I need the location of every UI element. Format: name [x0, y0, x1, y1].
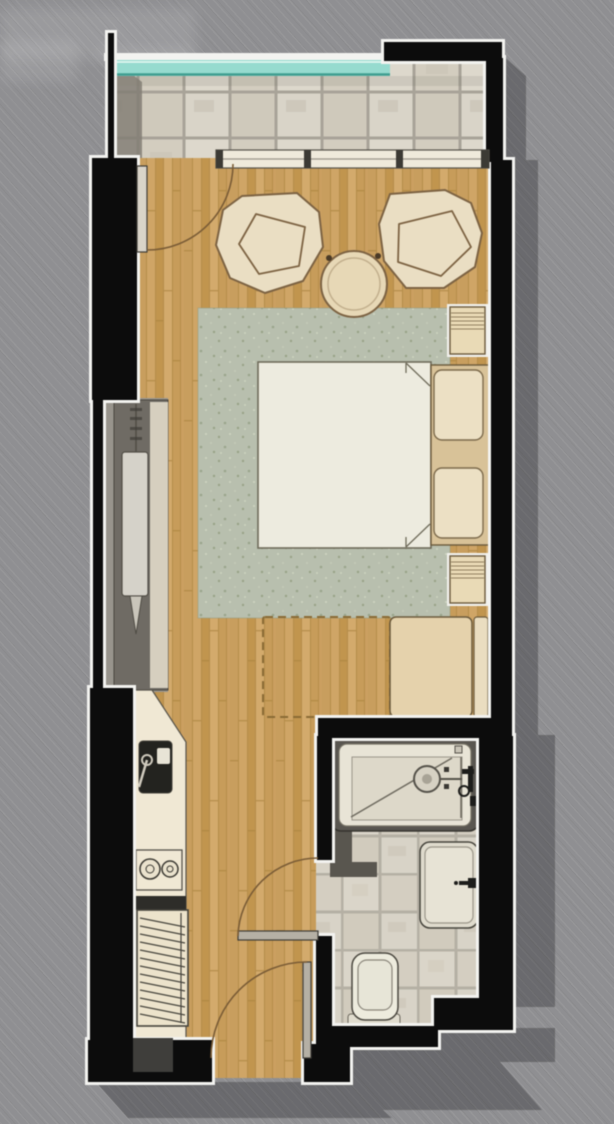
balcony-top-outline	[104, 53, 390, 61]
shower-control	[455, 746, 462, 753]
table-knob	[326, 255, 332, 261]
balcony-door-leaf	[137, 166, 147, 252]
appliance-front	[135, 896, 186, 910]
entry-door-leaf	[303, 962, 311, 1058]
shadow-right-top	[503, 56, 526, 164]
wall-left-top	[92, 158, 137, 400]
wall-top-right-band	[384, 42, 502, 61]
shadow-right-bath	[513, 735, 555, 1007]
wall-left-mid	[93, 396, 103, 692]
toilet-seat	[358, 960, 392, 1010]
kitchen-sink-drainer	[157, 748, 170, 764]
shadow-bottom-left	[96, 1082, 392, 1118]
wall-balcony-right	[486, 58, 503, 162]
shower-jet	[444, 767, 449, 772]
desk-bench	[390, 617, 472, 717]
cooktop-burner-large	[140, 859, 160, 879]
pillow	[434, 370, 483, 440]
wall-bathroom-bottom	[318, 1026, 438, 1047]
wardrobe-sliding-panel	[122, 452, 148, 596]
wardrobe-open-strip	[150, 402, 168, 688]
wardrobe	[114, 400, 168, 690]
wall-kitchen-left	[90, 688, 133, 1042]
wall-right-main	[491, 160, 512, 737]
desk-side-strip	[474, 617, 488, 717]
pillow	[434, 468, 483, 538]
wall-bathroom-left-upper	[317, 736, 332, 860]
shower-head-center	[422, 774, 432, 784]
cooktop-burner-small	[162, 861, 178, 877]
wall-bathroom-step	[434, 998, 513, 1030]
shadow-right-mid	[512, 160, 538, 737]
kitchenette	[133, 690, 188, 1038]
wall-bathroom-top	[318, 718, 512, 738]
nightstand-bottom	[450, 556, 485, 603]
wall-bathroom-left-lower	[316, 936, 332, 1048]
bathroom-door-leaf	[238, 931, 318, 940]
balcony-floor-shade	[114, 76, 487, 86]
wall-inset-duct	[133, 1038, 173, 1072]
table-knob	[375, 253, 381, 259]
floor-plan-drawing	[0, 0, 614, 1124]
bed-group	[258, 362, 489, 548]
round-table	[321, 251, 387, 317]
shower-jet	[444, 784, 449, 789]
bed-mattress	[258, 362, 431, 548]
wall-balcony-left	[108, 33, 114, 162]
wall-bathroom-right	[479, 736, 513, 1002]
nightstand-top	[450, 307, 485, 354]
balcony	[104, 53, 487, 160]
floor-plan-canvas	[0, 0, 614, 1124]
